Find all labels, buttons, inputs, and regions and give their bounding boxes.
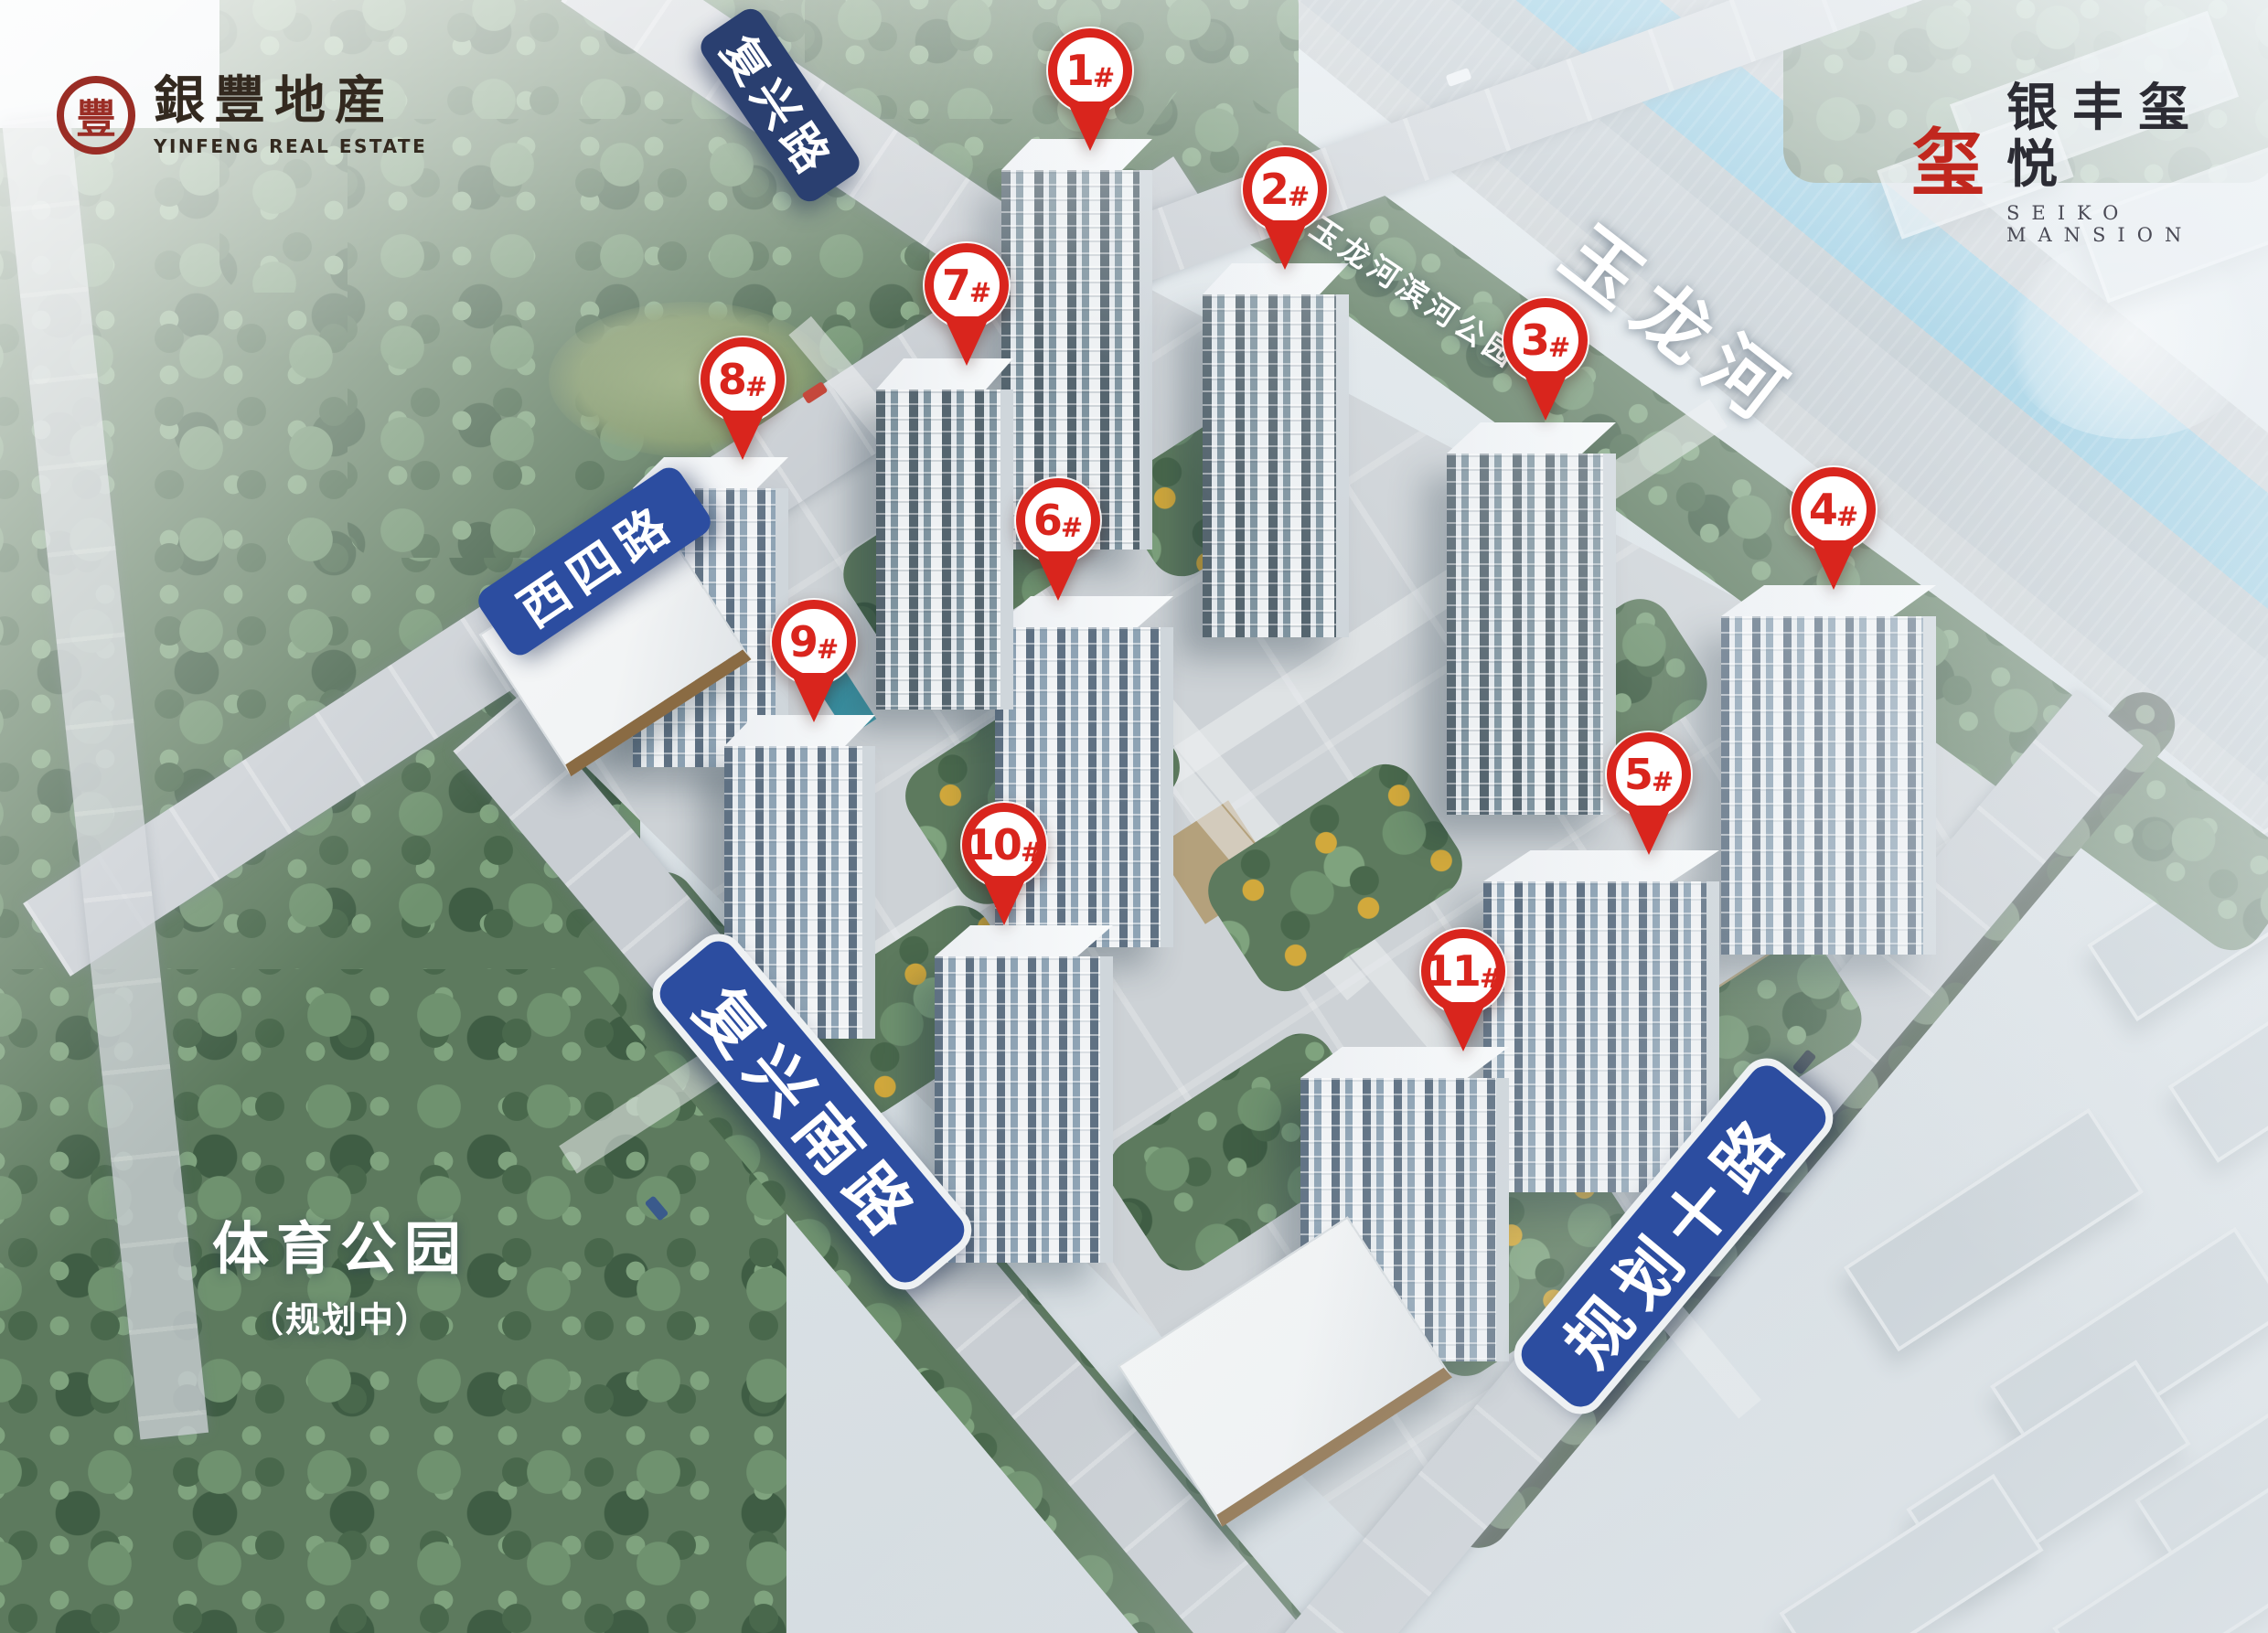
marker-6-circle: 6# (1016, 478, 1100, 562)
marker-1-hash: # (1093, 65, 1115, 91)
building-7-facade (876, 390, 1013, 710)
building-marker-1[interactable]: 1# (1048, 28, 1132, 151)
marker-1-number: 1 (1065, 49, 1093, 91)
marker-11-hash: # (1480, 966, 1502, 992)
building-6-roof (995, 596, 1173, 627)
marker-11-circle: 11# (1421, 929, 1505, 1013)
marker-7-hash: # (969, 280, 991, 306)
marker-5-circle: 5# (1607, 732, 1691, 816)
marker-3-number: 3 (1521, 319, 1548, 361)
marker-5-number: 5 (1624, 753, 1652, 795)
marker-4-number: 4 (1809, 488, 1836, 530)
mansion-name-cn: 银丰玺悦 (2006, 80, 2268, 193)
marker-7-circle: 7# (925, 243, 1009, 327)
marker-6-hash: # (1061, 515, 1083, 541)
cityblock-e-2 (2168, 977, 2268, 1163)
building-10-roof (935, 925, 1113, 956)
marker-5-pointer (1626, 806, 1672, 855)
marker-5-hash: # (1652, 769, 1674, 795)
marker-10-hash: # (1021, 839, 1043, 866)
marker-9-circle: 9# (772, 600, 856, 684)
mansion-seal-glyph: 玺 (1911, 127, 1984, 200)
yinfeng-seal-glyph: 豐 (76, 86, 116, 144)
marker-10-pointer (981, 876, 1027, 925)
building-4-roof (1721, 585, 1936, 616)
building-2 (1203, 263, 1349, 637)
building-marker-5[interactable]: 5# (1607, 732, 1691, 855)
sports-park-label: 体育公园 (212, 1202, 468, 1285)
mansion-logo: 玺 银丰玺悦 SEIKO MANSION (1908, 80, 2268, 246)
cityblock-s-1 (1779, 1474, 2043, 1633)
building-marker-4[interactable]: 4# (1792, 467, 1876, 590)
building-marker-10[interactable]: 10# (962, 803, 1046, 925)
marker-2-number: 2 (1260, 168, 1288, 210)
marker-2-hash: # (1288, 184, 1310, 210)
marker-6-number: 6 (1033, 499, 1061, 541)
building-3-roof (1447, 422, 1616, 454)
marker-9-pointer (791, 673, 837, 722)
sports-park-status-label: （规划中） (249, 1292, 432, 1342)
building-marker-11[interactable]: 11# (1421, 929, 1505, 1051)
building-marker-7[interactable]: 7# (925, 243, 1009, 366)
building-5-roof (1483, 850, 1719, 881)
marker-7-number: 7 (942, 264, 969, 306)
building-11-roof (1300, 1047, 1509, 1078)
marker-3-hash: # (1548, 335, 1570, 361)
building-marker-9[interactable]: 9# (772, 600, 856, 722)
marker-8-pointer (720, 411, 765, 460)
marker-1-pointer (1067, 101, 1113, 151)
marker-8-number: 8 (718, 358, 745, 400)
building-4-facade (1721, 616, 1936, 955)
building-marker-2[interactable]: 2# (1243, 147, 1327, 270)
yinfeng-seal-icon: 豐 (57, 76, 135, 155)
building-3 (1447, 422, 1616, 815)
marker-3-pointer (1523, 371, 1568, 421)
building-7 (876, 358, 1013, 710)
building-marker-8[interactable]: 8# (701, 337, 785, 460)
building-4 (1721, 585, 1936, 955)
marker-3-circle: 3# (1503, 298, 1588, 382)
marker-6-pointer (1035, 551, 1081, 601)
mansion-name-en: SEIKO MANSION (2006, 202, 2268, 246)
marker-11-pointer (1440, 1002, 1486, 1051)
yinfeng-name-cn: 銀豐地産 (154, 73, 427, 130)
building-3-facade (1447, 454, 1616, 815)
building-2-facade (1203, 294, 1349, 637)
marker-9-number: 9 (789, 621, 817, 663)
building-marker-6[interactable]: 6# (1016, 478, 1100, 601)
marker-2-circle: 2# (1243, 147, 1327, 231)
marker-4-circle: 4# (1792, 467, 1876, 551)
marker-9-hash: # (817, 636, 839, 663)
aerial-site-plan: 玉龙河 玉龙河滨河公园 体育公园 （规划中） 复兴路 西四路 复兴南路 规划十路… (0, 0, 2268, 1633)
marker-10-circle: 10# (962, 803, 1046, 887)
marker-8-hash: # (745, 374, 767, 400)
marker-10-number: 10 (966, 824, 1021, 866)
marker-1-circle: 1# (1048, 28, 1132, 112)
marker-8-circle: 8# (701, 337, 785, 422)
building-marker-3[interactable]: 3# (1503, 298, 1588, 421)
yinfeng-logo: 豐 銀豐地産 YINFENG REAL ESTATE (57, 73, 427, 157)
marker-7-pointer (944, 316, 990, 366)
mansion-seal-icon: 玺 (1908, 123, 1988, 204)
marker-2-pointer (1262, 220, 1308, 270)
marker-4-pointer (1811, 540, 1856, 590)
marker-11-number: 11 (1425, 950, 1480, 992)
marker-4-hash: # (1836, 504, 1858, 530)
yinfeng-name-en: YINFENG REAL ESTATE (154, 135, 427, 157)
